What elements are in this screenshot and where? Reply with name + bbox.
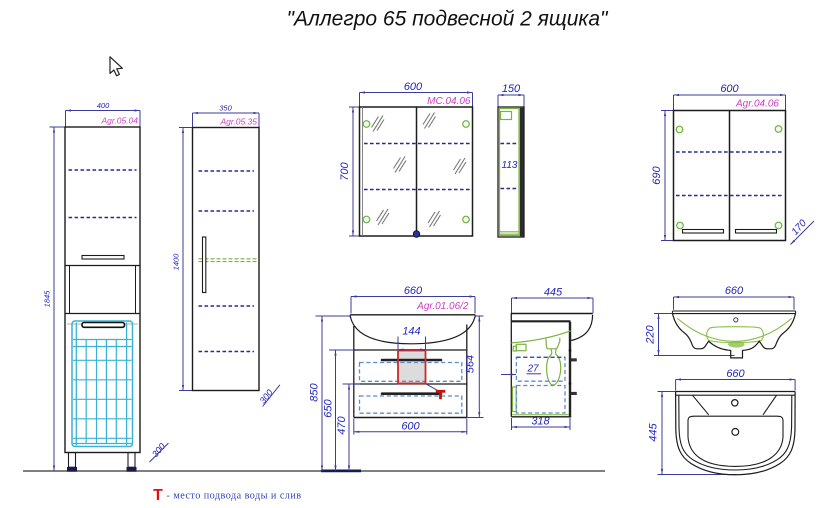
svg-text:1845: 1845 bbox=[43, 290, 52, 308]
svg-text:113: 113 bbox=[502, 160, 518, 171]
svg-text:Agr.04.06: Agr.04.06 bbox=[735, 99, 779, 110]
svg-text:564: 564 bbox=[465, 355, 477, 373]
svg-text:1400: 1400 bbox=[172, 253, 181, 271]
svg-text:"Аллегро 65 подвесной 2 ящика": "Аллегро 65 подвесной 2 ящика" bbox=[287, 8, 609, 31]
svg-text:350: 350 bbox=[219, 104, 232, 113]
svg-text:600: 600 bbox=[720, 83, 739, 95]
svg-text:445: 445 bbox=[544, 287, 563, 299]
svg-text:600: 600 bbox=[404, 81, 423, 93]
svg-text:600: 600 bbox=[401, 421, 420, 433]
svg-text:220: 220 bbox=[645, 324, 657, 344]
svg-text:300: 300 bbox=[258, 388, 275, 406]
svg-text:700: 700 bbox=[339, 161, 351, 180]
svg-text:318: 318 bbox=[531, 416, 550, 428]
svg-text:Agr.05.04: Agr.05.04 bbox=[100, 116, 138, 126]
svg-text:27: 27 bbox=[526, 364, 539, 375]
svg-text:144: 144 bbox=[402, 326, 420, 338]
svg-text:660: 660 bbox=[726, 368, 745, 380]
svg-text:Agr.01.06/2: Agr.01.06/2 bbox=[416, 301, 469, 312]
svg-text:- место подвода воды и слив: - место подвода воды и слив bbox=[167, 491, 302, 502]
svg-text:400: 400 bbox=[97, 101, 110, 110]
svg-text:T: T bbox=[153, 487, 163, 504]
svg-text:660: 660 bbox=[725, 285, 744, 297]
svg-text:650: 650 bbox=[323, 398, 335, 417]
svg-text:MC.04.06: MC.04.06 bbox=[427, 96, 471, 107]
svg-text:690: 690 bbox=[651, 165, 663, 184]
svg-text:660: 660 bbox=[404, 285, 423, 297]
svg-text:Agr.05.35: Agr.05.35 bbox=[219, 117, 257, 127]
svg-text:470: 470 bbox=[336, 415, 348, 434]
svg-text:445: 445 bbox=[648, 422, 660, 441]
svg-text:150: 150 bbox=[502, 83, 521, 95]
svg-text:170: 170 bbox=[790, 218, 810, 238]
svg-text:850: 850 bbox=[309, 382, 321, 401]
svg-text:300: 300 bbox=[150, 441, 167, 459]
